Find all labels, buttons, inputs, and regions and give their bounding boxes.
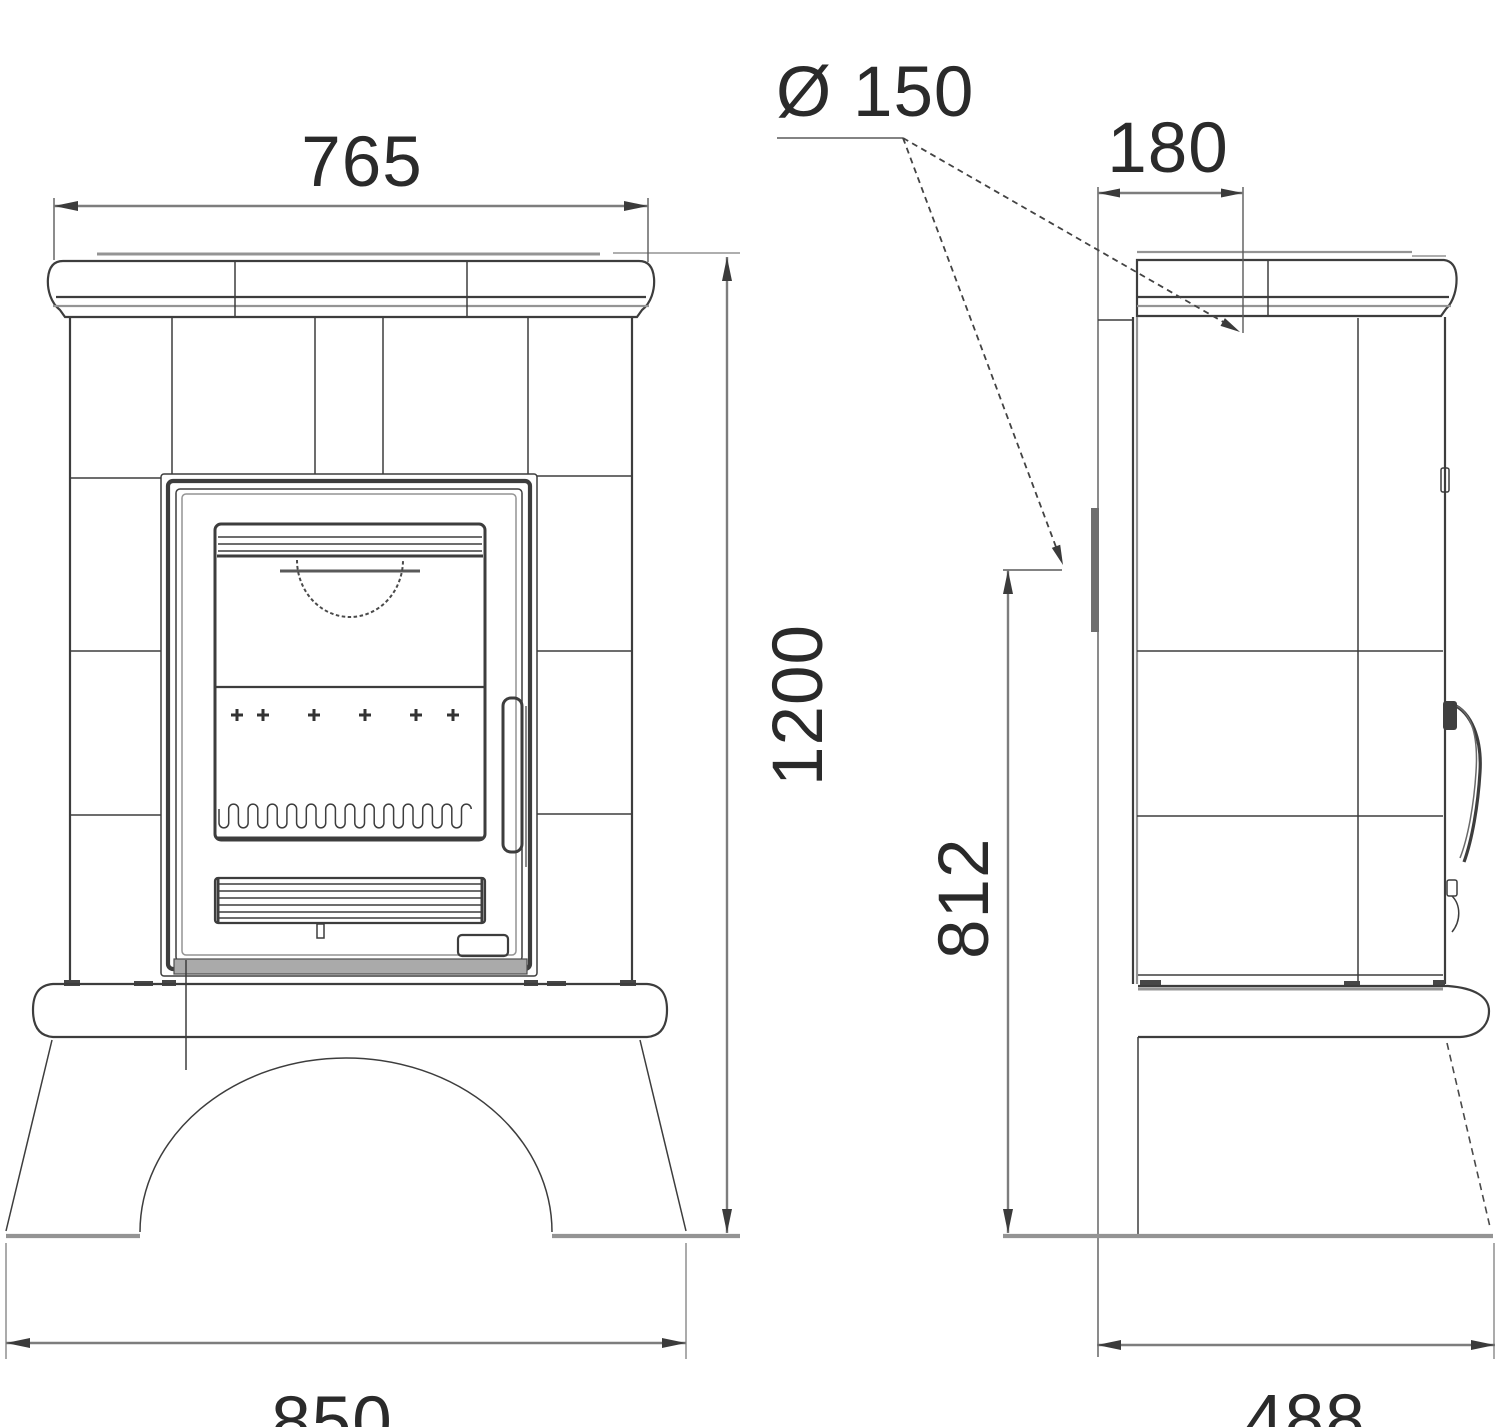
door-handle[interactable] xyxy=(503,698,526,867)
dimension-base-width: 850 xyxy=(6,1243,686,1427)
dimension-label-flue-height: 812 xyxy=(925,838,1004,959)
dimension-top-depth: 180 xyxy=(1098,109,1243,333)
door-main-frame xyxy=(168,481,530,969)
stove-door[interactable] xyxy=(161,474,537,1070)
side-plinth xyxy=(1138,986,1489,1037)
dimension-flue-height: 812 xyxy=(925,570,1062,1233)
dimension-label-top-width: 765 xyxy=(301,123,422,202)
bottom-vent-grille xyxy=(215,878,485,923)
front-body-tiles xyxy=(64,317,636,986)
dimension-label-total-height: 1200 xyxy=(759,624,838,786)
dimension-label-base-width: 850 xyxy=(271,1383,392,1427)
door-inner-frame xyxy=(176,489,522,961)
front-view xyxy=(6,253,740,1236)
drawing-canvas: 765 1200 812 180 850 488 xyxy=(0,0,1500,1427)
dimension-label-top-depth: 180 xyxy=(1107,109,1228,188)
front-top-cap xyxy=(48,253,740,317)
damper-handle[interactable] xyxy=(280,560,420,617)
technical-drawing: 765 1200 812 180 850 488 xyxy=(0,0,1500,1427)
side-base xyxy=(1003,1037,1493,1236)
wave-pattern xyxy=(219,804,471,828)
front-base-arch xyxy=(6,1040,740,1236)
side-top-cap xyxy=(1137,252,1457,316)
dimension-total-height: 1200 xyxy=(722,257,838,1233)
door-face-edge xyxy=(182,494,516,955)
side-body-tiles xyxy=(1133,317,1449,986)
door-sill xyxy=(174,959,527,974)
side-view xyxy=(1003,187,1493,1357)
base-arch-curve xyxy=(140,1058,552,1232)
dimension-top-width: 765 xyxy=(54,123,648,262)
front-plinth xyxy=(33,984,667,1037)
dimension-label-flue-diameter: Ø 150 xyxy=(776,53,974,132)
flue-collar xyxy=(1091,508,1099,632)
side-door-handle[interactable] xyxy=(1443,701,1480,932)
vent-control-pin[interactable] xyxy=(317,924,324,938)
side-rear-panel xyxy=(1091,187,1132,1357)
air-adjust-plus-marks xyxy=(231,709,459,721)
dimension-label-base-depth: 488 xyxy=(1244,1381,1365,1427)
dimension-base-depth: 488 xyxy=(1097,1243,1495,1427)
lower-latch xyxy=(1447,880,1459,932)
base-front-edge xyxy=(1447,1043,1490,1227)
ash-lip xyxy=(458,935,508,956)
